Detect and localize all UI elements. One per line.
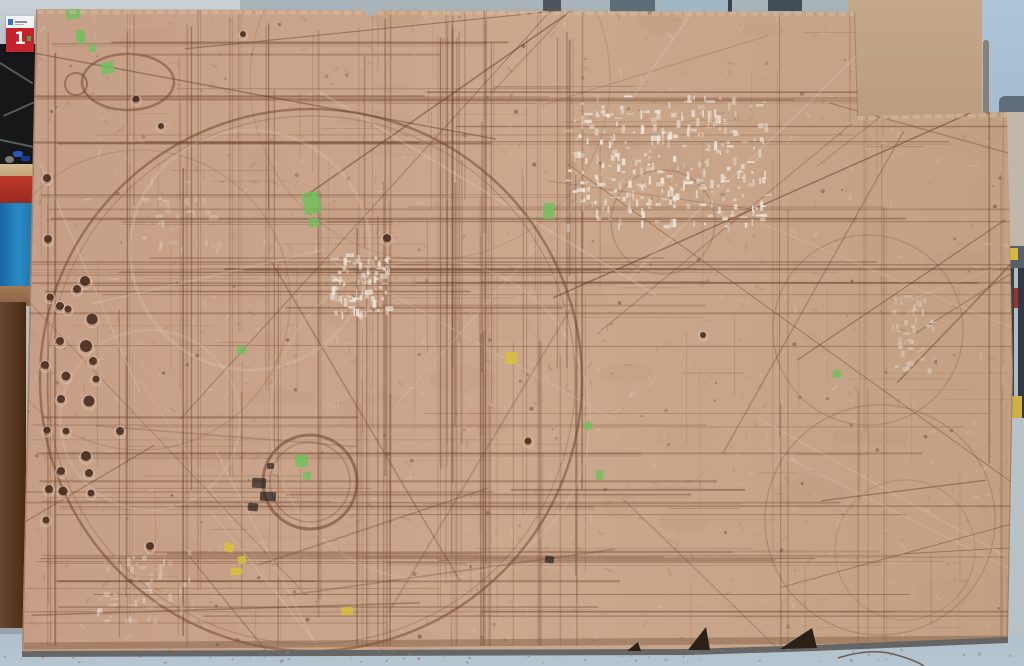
- floor-wire: [838, 652, 924, 666]
- board-surface: [0, 0, 1024, 666]
- workshop-scene: 1: [0, 0, 1024, 666]
- scored-spoilboard: [0, 0, 1024, 666]
